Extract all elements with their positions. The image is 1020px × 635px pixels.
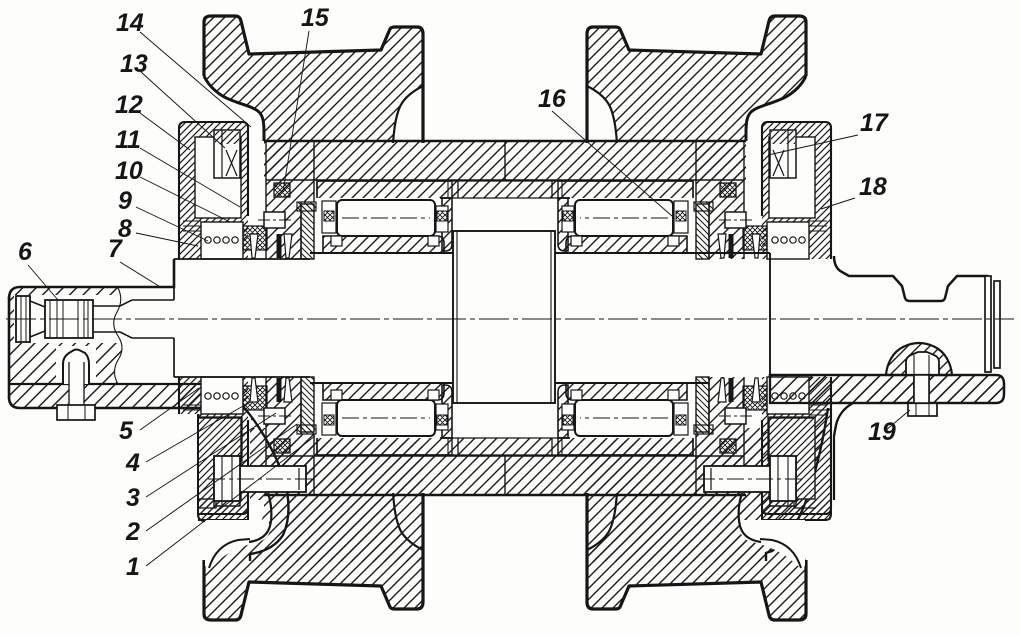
svg-text:2: 2 xyxy=(125,518,140,546)
svg-text:18: 18 xyxy=(859,173,887,201)
svg-text:12: 12 xyxy=(115,91,143,119)
svg-text:5: 5 xyxy=(119,417,134,445)
svg-text:3: 3 xyxy=(126,484,140,512)
svg-text:4: 4 xyxy=(125,449,140,477)
svg-text:16: 16 xyxy=(538,85,567,113)
svg-text:14: 14 xyxy=(116,9,144,37)
svg-text:9: 9 xyxy=(118,187,132,215)
svg-text:15: 15 xyxy=(301,4,330,32)
svg-text:1: 1 xyxy=(126,553,140,581)
svg-text:19: 19 xyxy=(868,418,896,446)
svg-text:6: 6 xyxy=(18,238,33,266)
svg-text:11: 11 xyxy=(115,126,141,154)
svg-text:13: 13 xyxy=(120,50,148,78)
svg-text:8: 8 xyxy=(118,215,132,243)
svg-text:17: 17 xyxy=(860,109,889,137)
svg-text:10: 10 xyxy=(115,157,143,185)
